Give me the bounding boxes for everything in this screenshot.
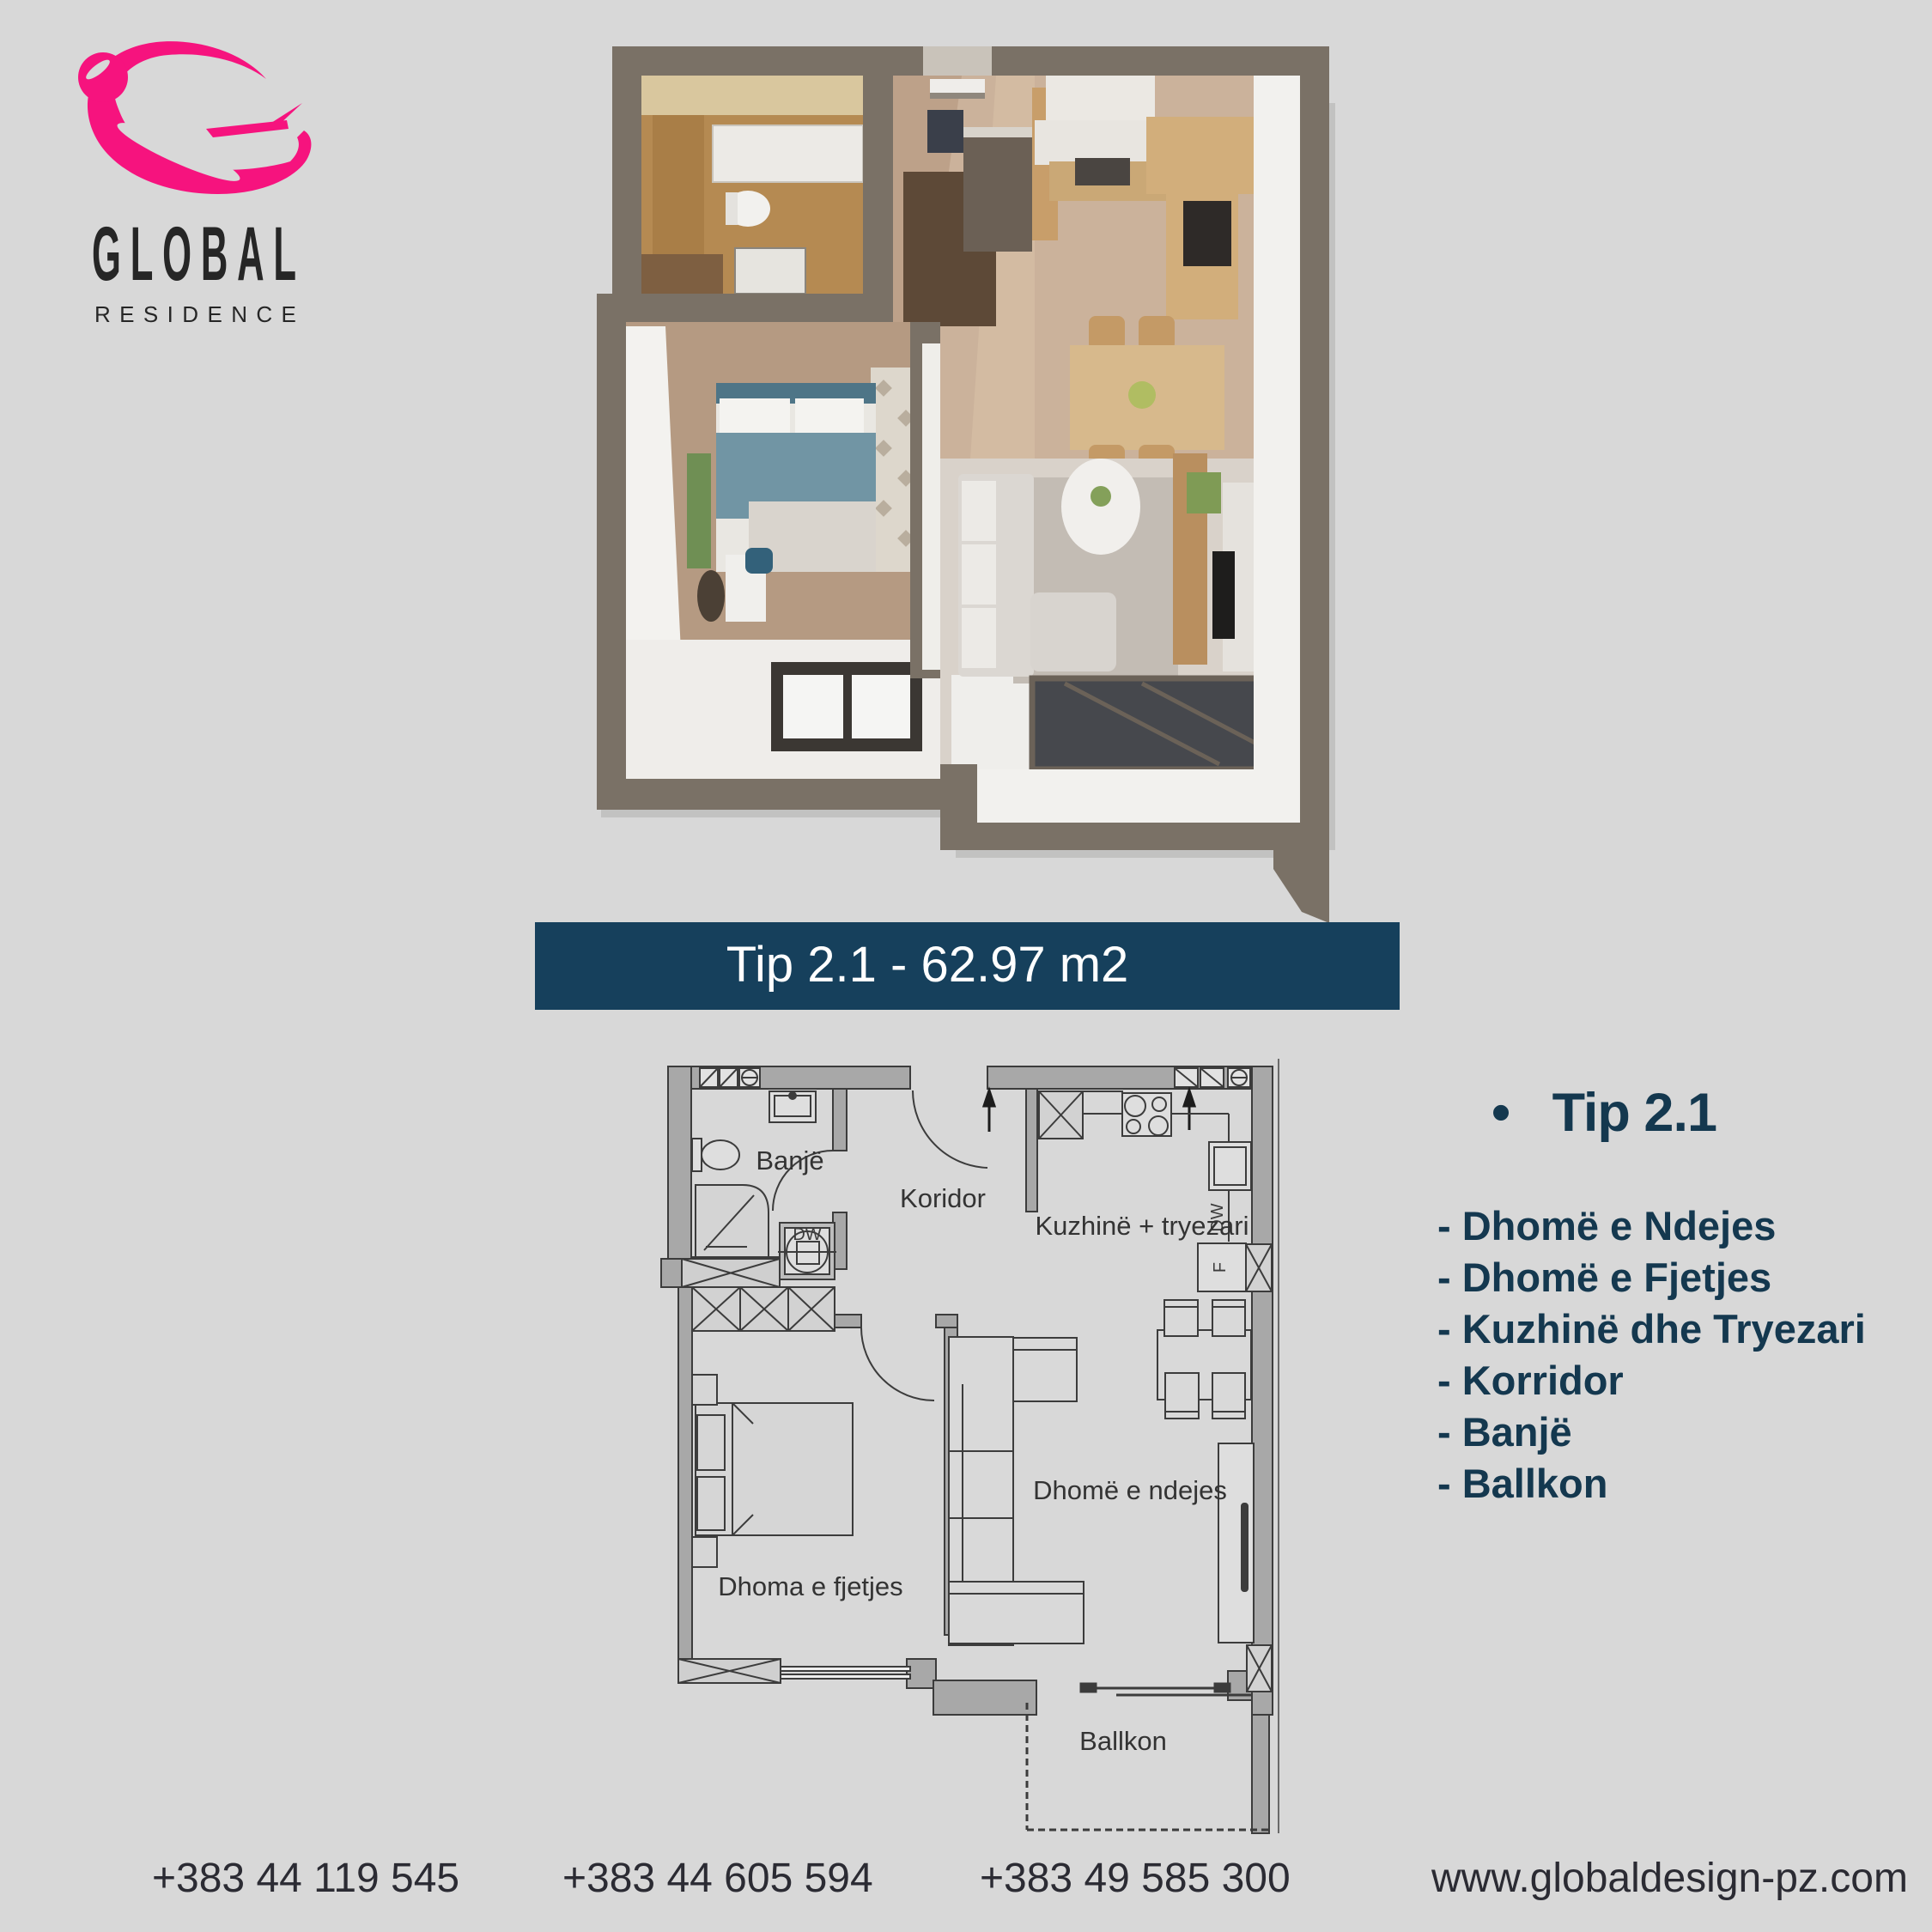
svg-text:Koridor: Koridor	[900, 1183, 986, 1213]
svg-text:F: F	[1211, 1262, 1230, 1273]
svg-text:Dhoma e fjetjes: Dhoma e fjetjes	[718, 1571, 902, 1601]
svg-text:DW: DW	[793, 1225, 821, 1244]
svg-text:Ballkon: Ballkon	[1079, 1726, 1167, 1756]
svg-text:Kuzhinë + tryezari: Kuzhinë + tryezari	[1036, 1211, 1249, 1241]
svg-text:GLOBAL: GLOBAL	[92, 211, 306, 296]
svg-text:Banjë: Banjë	[756, 1145, 823, 1176]
svg-text:RESIDENCE: RESIDENCE	[94, 301, 305, 327]
svg-text:Dhomë e ndejes: Dhomë e ndejes	[1033, 1475, 1227, 1505]
